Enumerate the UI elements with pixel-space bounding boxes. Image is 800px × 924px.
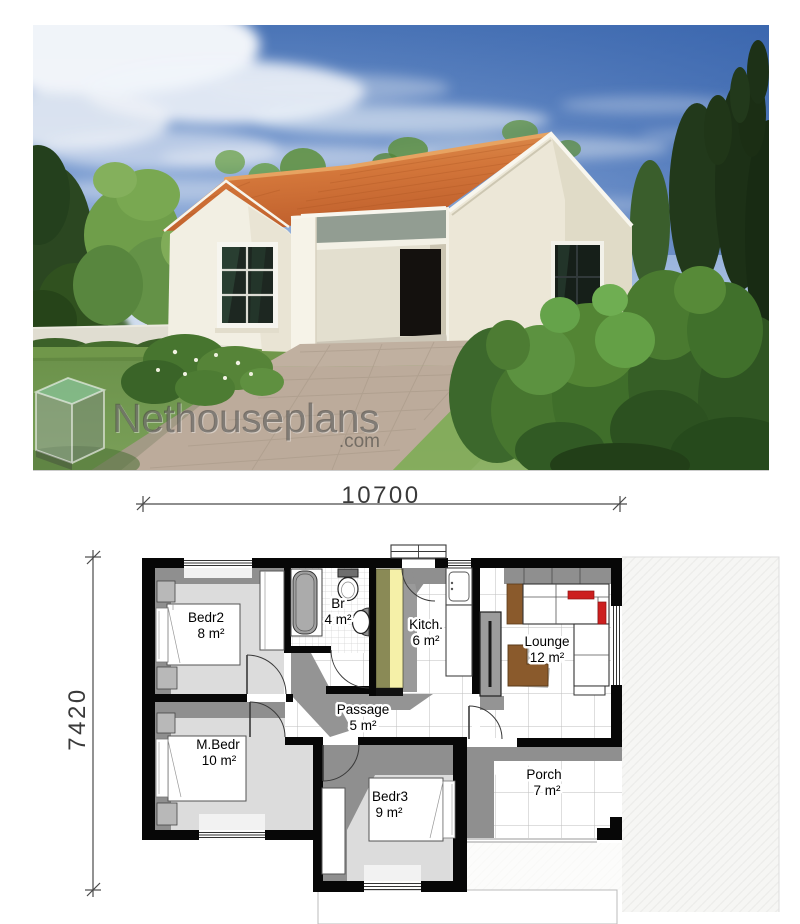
svg-text:4 m²: 4 m²	[325, 612, 353, 627]
svg-text:6 m²: 6 m²	[413, 633, 441, 648]
svg-text:M.Bedr: M.Bedr	[196, 737, 240, 752]
svg-text:10 m²: 10 m²	[202, 753, 237, 768]
svg-text:Kitch.: Kitch.	[409, 617, 443, 632]
svg-text:7420: 7420	[64, 687, 91, 750]
svg-text:10700: 10700	[341, 482, 420, 509]
svg-text:Bedr3: Bedr3	[372, 789, 408, 804]
svg-text:8 m²: 8 m²	[198, 626, 226, 641]
svg-text:9 m²: 9 m²	[376, 805, 404, 820]
svg-text:12 m²: 12 m²	[530, 650, 565, 665]
svg-text:Porch: Porch	[526, 767, 561, 782]
svg-text:Lounge: Lounge	[524, 634, 569, 649]
svg-text:Bedr2: Bedr2	[188, 610, 224, 625]
svg-text:7 m²: 7 m²	[534, 783, 562, 798]
svg-text:Passage: Passage	[337, 702, 390, 717]
svg-text:Br: Br	[331, 596, 345, 611]
svg-text:.com: .com	[339, 431, 380, 452]
svg-text:5 m²: 5 m²	[350, 718, 378, 733]
